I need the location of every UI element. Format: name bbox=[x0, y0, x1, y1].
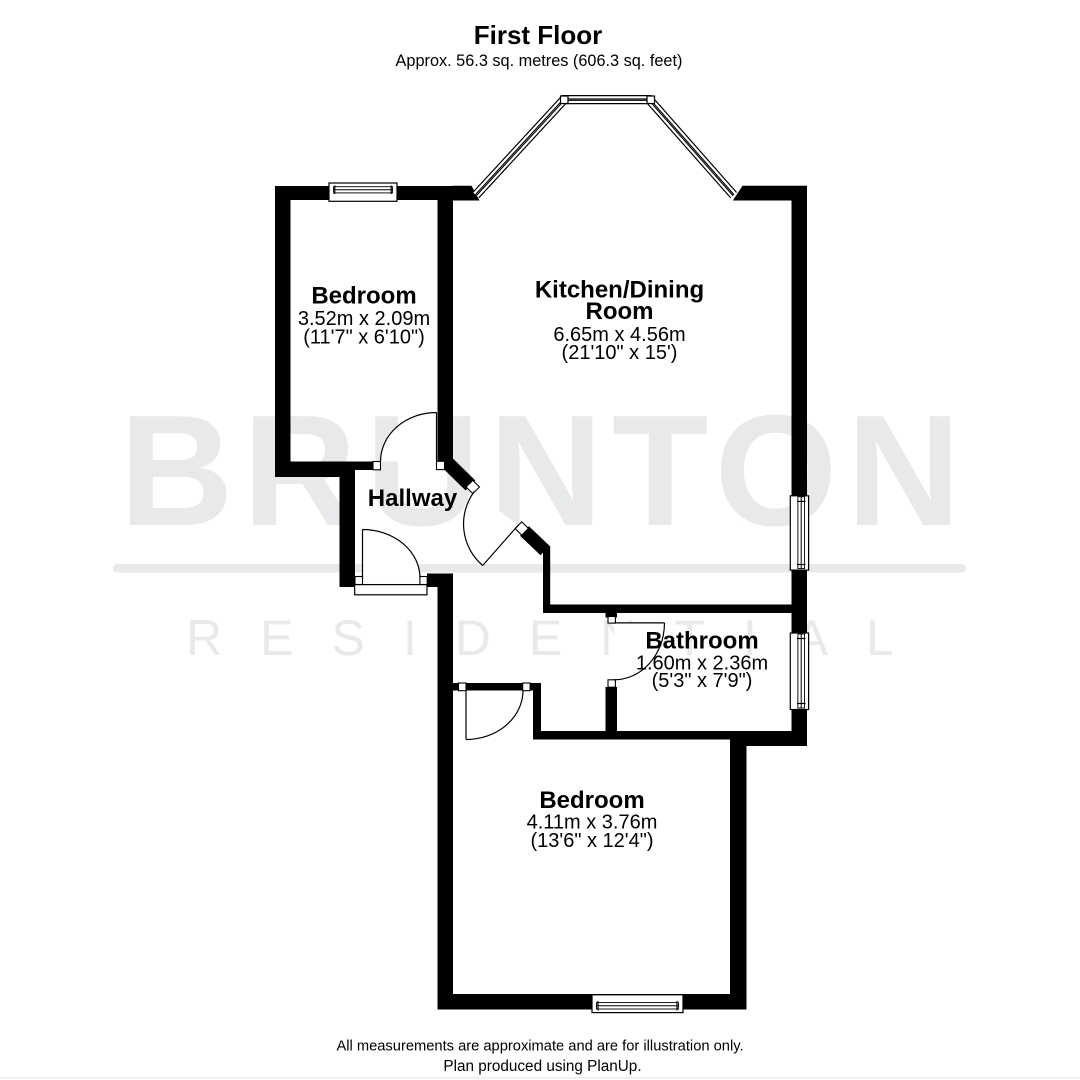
svg-text:Hallway: Hallway bbox=[368, 485, 458, 512]
svg-text:Bedroom: Bedroom bbox=[539, 787, 644, 814]
svg-text:Approx. 56.3 sq. metres (606.3: Approx. 56.3 sq. metres (606.3 sq. feet) bbox=[396, 52, 683, 70]
svg-text:Bedroom: Bedroom bbox=[311, 283, 416, 310]
svg-text:(5'3" x 7'9"): (5'3" x 7'9") bbox=[652, 670, 753, 692]
svg-text:BRUNTON: BRUNTON bbox=[119, 383, 969, 559]
svg-text:Room: Room bbox=[586, 298, 654, 325]
svg-text:(21'10" x 15'): (21'10" x 15') bbox=[562, 342, 678, 364]
svg-text:All measurements are approxima: All measurements are approximate and are… bbox=[336, 1039, 743, 1055]
svg-text:Plan produced using PlanUp.: Plan produced using PlanUp. bbox=[443, 1058, 641, 1075]
svg-text:First Floor: First Floor bbox=[474, 20, 603, 50]
svg-text:(13'6" x 12'4"): (13'6" x 12'4") bbox=[530, 830, 653, 852]
svg-text:Bathroom: Bathroom bbox=[645, 628, 758, 655]
svg-text:RESIDENTIAL: RESIDENTIAL bbox=[186, 610, 932, 666]
svg-text:(11'7" x 6'10"): (11'7" x 6'10") bbox=[303, 327, 425, 349]
